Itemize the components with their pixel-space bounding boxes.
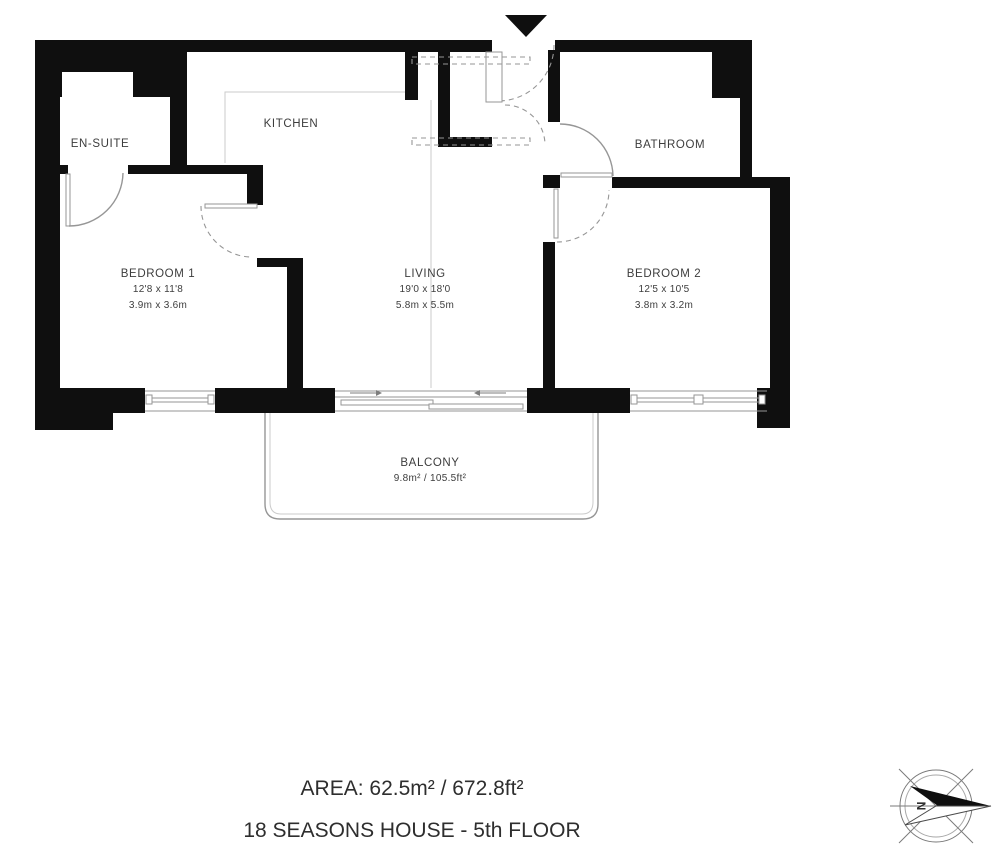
compass-icon: N <box>890 769 991 843</box>
bathroom-label: BATHROOM <box>635 139 705 151</box>
closet-door-panel <box>486 52 502 102</box>
floorplan-page: EN-SUITE KITCHEN BATHROOM BEDROOM 1 12'8… <box>0 0 1000 867</box>
bathroom-door-swing-arc <box>560 124 613 176</box>
kitchen-label: KITCHEN <box>264 118 319 130</box>
living-size-imperial: 19'0 x 18'0 <box>399 284 450 295</box>
bedroom1-size-imperial: 12'8 x 11'8 <box>133 284 183 295</box>
closet-door-swing-arc <box>505 105 545 145</box>
bedroom1-wardrobe-door <box>201 204 257 257</box>
living-label: LIVING <box>404 268 445 280</box>
closet-folding-panel-top <box>412 57 530 64</box>
bedroom2-size-metric: 3.8m x 3.2m <box>635 300 693 311</box>
bathroom-door <box>560 124 613 177</box>
compass-north-label: N <box>914 802 928 811</box>
ensuite-door <box>66 173 123 226</box>
footer: AREA: 62.5m² / 672.8ft² 18 SEASONS HOUSE… <box>243 777 580 842</box>
ensuite-door-swing-arc <box>69 173 123 226</box>
balcony-area: 9.8m² / 105.5ft² <box>394 473 467 484</box>
area-total-label: AREA: 62.5m² / 672.8ft² <box>301 777 524 800</box>
entry-door-swing-arc <box>498 45 554 101</box>
bedroom2-size-imperial: 12'5 x 10'5 <box>638 284 689 295</box>
bedroom2-window <box>630 391 767 411</box>
walls <box>35 40 790 430</box>
bedroom1-size-metric: 3.9m x 3.6m <box>129 300 187 311</box>
balcony-label: BALCONY <box>400 457 459 469</box>
entrance-marker-icon <box>505 15 547 37</box>
living-size-metric: 5.8m x 5.5m <box>396 300 454 311</box>
entry-door <box>412 45 554 145</box>
bedroom2-door-swing-arc <box>557 190 609 242</box>
bedroom1-door-swing-arc <box>201 206 252 257</box>
bedroom2-door <box>554 189 609 242</box>
kitchen-floor-outline <box>225 92 431 388</box>
bedroom1-window <box>145 391 215 411</box>
ensuite-label: EN-SUITE <box>71 138 129 150</box>
building-label: 18 SEASONS HOUSE - 5th FLOOR <box>243 819 580 842</box>
floorplan-image: EN-SUITE KITCHEN BATHROOM BEDROOM 1 12'8… <box>0 0 1000 867</box>
bedroom1-label: BEDROOM 1 <box>121 268 195 280</box>
living-sliding-door <box>335 390 527 411</box>
bedroom2-label: BEDROOM 2 <box>627 268 701 280</box>
